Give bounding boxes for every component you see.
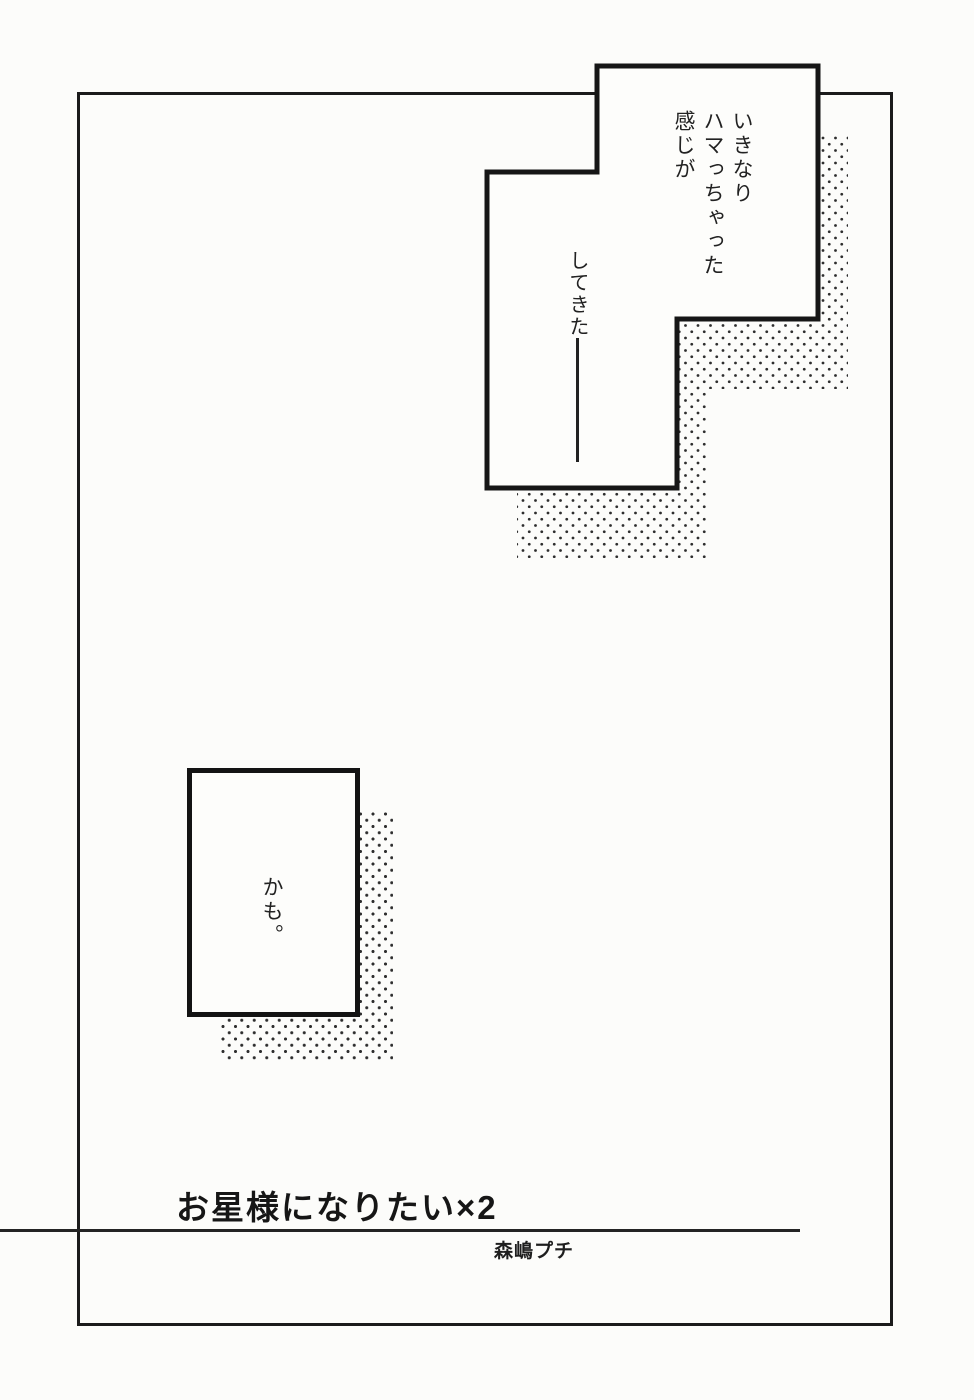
speech-line: ハマっちゃった — [698, 110, 727, 280]
panel-outline-top — [487, 66, 818, 488]
speech-text-bottom: かも。 — [257, 876, 285, 961]
speech-text-top: いきなり ハマっちゃった 感じが — [660, 110, 756, 280]
speech-line: 感じが — [669, 110, 698, 280]
speech-text-continuation: してきた — [563, 250, 591, 345]
speech-dash-line — [576, 338, 579, 462]
title-underline — [0, 1229, 800, 1232]
story-title: お星様になりたい×2 — [176, 1190, 498, 1226]
scanned-page: いきなり ハマっちゃった 感じが してきた かも。 お星様になりたい×2 森嶋プ… — [0, 0, 974, 1400]
author-name: 森嶋プチ — [494, 1236, 574, 1263]
speech-line: いきなり — [727, 110, 756, 280]
